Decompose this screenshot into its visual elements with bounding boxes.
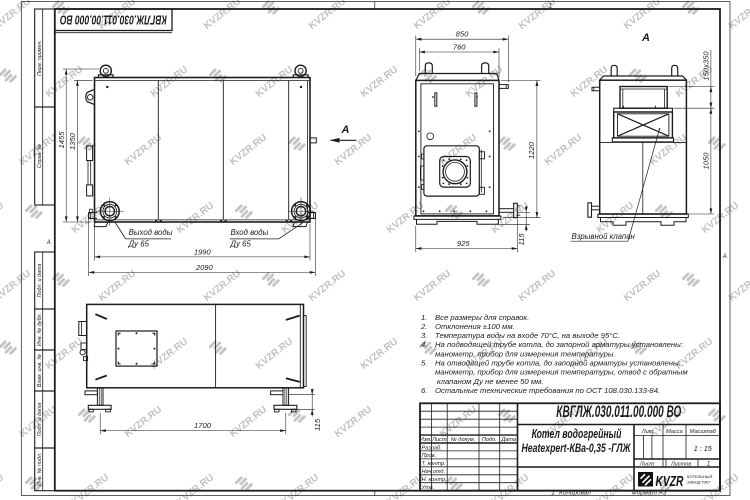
svg-text:1.: 1. — [421, 313, 427, 322]
svg-text:А: А — [641, 32, 650, 44]
svg-text:№ докум.: № докум. — [451, 437, 476, 443]
svg-text:Масса: Масса — [666, 429, 683, 435]
svg-text:1455: 1455 — [57, 131, 66, 149]
svg-text:KVZR: KVZR — [656, 473, 685, 489]
svg-text:Нач.отд.: Нач.отд. — [422, 469, 446, 475]
svg-text:А: А — [46, 240, 51, 246]
svg-text:Ду 65: Ду 65 — [128, 240, 150, 249]
svg-text:Т. контр.: Т. контр. — [422, 461, 446, 467]
svg-text:Остальные технические требован: Остальные технические требования по ОСТ … — [435, 386, 660, 395]
svg-text:150х350: 150х350 — [701, 51, 710, 81]
svg-text:Изм.: Изм. — [420, 437, 432, 443]
svg-text:6.: 6. — [421, 386, 427, 395]
svg-text:манометр, прибор для измерения: манометр, прибор для измерения температу… — [435, 368, 688, 377]
svg-text:Листов: Листов — [670, 462, 691, 468]
svg-text:Подп. и дата: Подп. и дата — [37, 403, 43, 437]
svg-text:ЗАВОД РЖТ: ЗАВОД РЖТ — [687, 480, 711, 485]
svg-text:Температура воды на входе 70°С: Температура воды на входе 70°С, на выход… — [435, 331, 620, 340]
svg-text:Вход воды: Вход воды — [231, 228, 269, 237]
svg-text:Инв. № подл.: Инв. № подл. — [37, 453, 43, 486]
svg-text:На отводящей трубе котла, до з: На отводящей трубе котла, до запорной ар… — [435, 359, 681, 368]
svg-text:Разраб.: Разраб. — [422, 445, 442, 451]
svg-text:Инв. № дубл.: Инв. № дубл. — [37, 313, 43, 346]
svg-text:1350: 1350 — [68, 132, 77, 150]
svg-text:Подп. и дата: Подп. и дата — [37, 264, 43, 298]
svg-text:Пров.: Пров. — [422, 453, 437, 459]
svg-text:115: 115 — [313, 418, 322, 431]
svg-text:КВГЛЖ.030.011.00.000 ВО: КВГЛЖ.030.011.00.000 ВО — [60, 12, 167, 26]
svg-text:Перв. примен.: Перв. примен. — [37, 40, 43, 76]
svg-text:760: 760 — [453, 42, 466, 51]
svg-text:850: 850 — [456, 30, 469, 39]
svg-text:5.: 5. — [421, 359, 427, 368]
svg-text:Масштаб: Масштаб — [690, 429, 717, 435]
svg-text:Утв.: Утв. — [421, 485, 435, 491]
svg-text:Взам. инв. №: Взам. инв. № — [37, 354, 43, 388]
svg-text:Heatexpert-КВа-0,35 -ГЛЖ: Heatexpert-КВа-0,35 -ГЛЖ — [521, 442, 631, 456]
svg-text:1: 1 — [549, 3, 552, 9]
svg-text:Отклонения ±100 мм.: Отклонения ±100 мм. — [435, 322, 515, 331]
svg-text:Выход воды: Выход воды — [129, 228, 173, 237]
svg-text:2.: 2. — [420, 322, 427, 331]
svg-text:3.: 3. — [421, 331, 427, 340]
svg-text:1: 1 — [707, 461, 711, 468]
svg-text:1990: 1990 — [194, 247, 212, 256]
svg-text:На подводящей трубе котла, до: На подводящей трубе котла, до запорной а… — [435, 340, 683, 349]
svg-text:1220: 1220 — [527, 141, 536, 159]
svg-text:Лист: Лист — [639, 462, 655, 468]
svg-text:Дата: Дата — [500, 437, 516, 443]
svg-text:А: А — [722, 254, 727, 260]
svg-text:1700: 1700 — [194, 421, 212, 430]
svg-text:Справ. №: Справ. № — [37, 144, 43, 169]
svg-text:Взрывной клапан: Взрывной клапан — [572, 232, 636, 241]
svg-text:115: 115 — [517, 233, 526, 246]
svg-text:А: А — [341, 124, 350, 136]
svg-text:КВГЛЖ.030.011.00.000 ВО: КВГЛЖ.030.011.00.000 ВО — [556, 403, 681, 421]
svg-text:1050: 1050 — [701, 152, 710, 170]
svg-text:1 : 15: 1 : 15 — [694, 444, 713, 453]
svg-text:Лист: Лист — [431, 437, 447, 443]
svg-text:Ду 65: Ду 65 — [230, 240, 252, 249]
svg-text:4.: 4. — [421, 340, 427, 349]
svg-text:манометр, прибор для измерения: манометр, прибор для измерения температу… — [435, 349, 616, 358]
svg-text:Котел водогрейный: Котел водогрейный — [532, 427, 622, 441]
svg-text:клапаном Ду не менее 50 мм.: клапаном Ду не менее 50 мм. — [437, 377, 544, 386]
svg-text:925: 925 — [457, 239, 470, 248]
svg-text:Подп.: Подп. — [482, 437, 497, 443]
svg-text:Все размеры для справок.: Все размеры для справок. — [435, 313, 529, 322]
svg-text:2090: 2090 — [195, 263, 214, 272]
svg-text:Лит.: Лит. — [641, 429, 655, 435]
svg-text:КОТЕЛЬНЫЙ: КОТЕЛЬНЫЙ — [687, 474, 712, 479]
svg-text:Н. контр.: Н. контр. — [422, 477, 447, 483]
